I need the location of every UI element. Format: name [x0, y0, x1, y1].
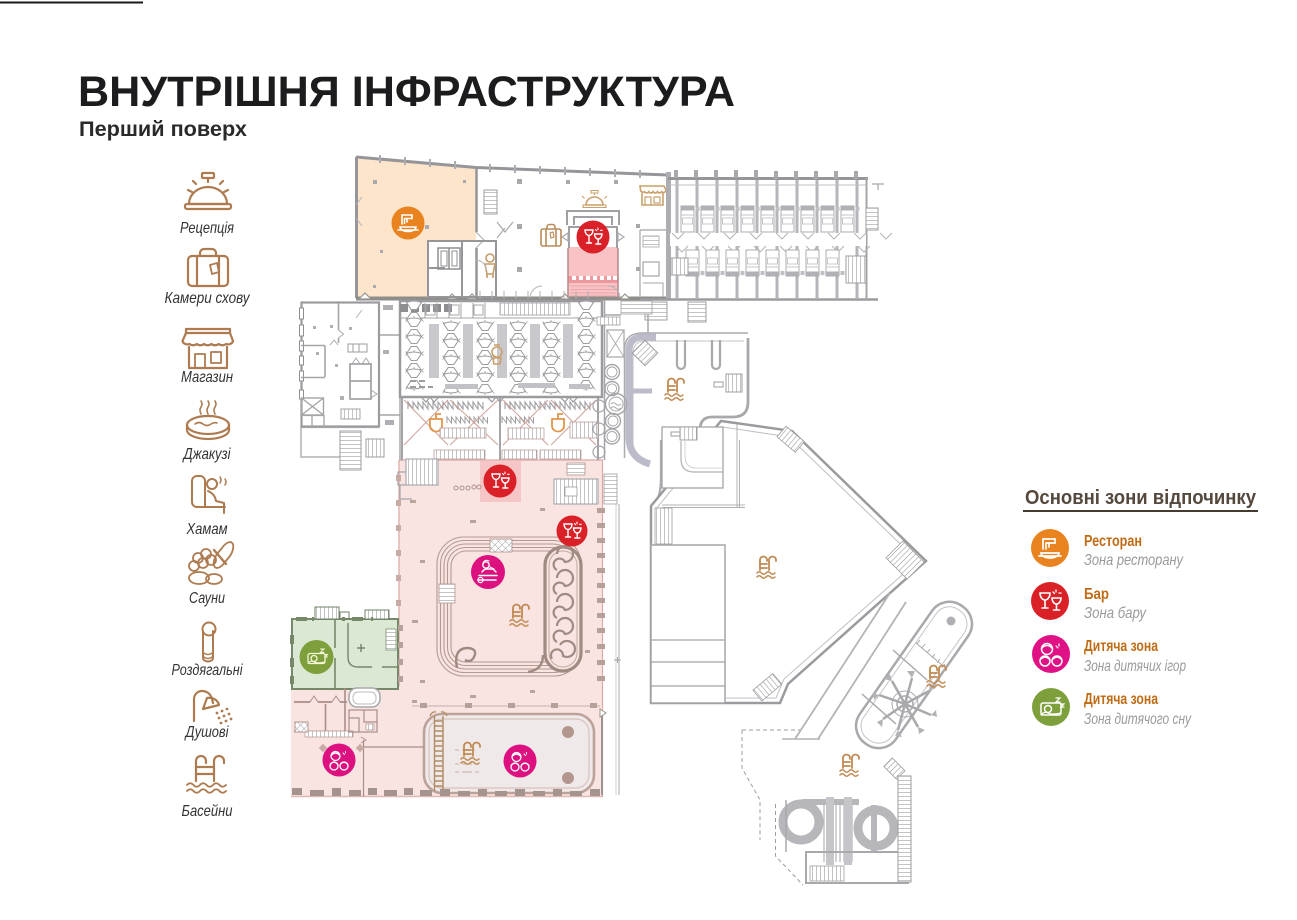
svg-text:Басейни: Басейни: [182, 803, 233, 820]
svg-text:Перший поверх: Перший поверх: [79, 117, 247, 141]
svg-text:Роздягальні: Роздягальні: [172, 662, 243, 679]
svg-text:Хамам: Хамам: [186, 521, 228, 538]
svg-text:Камери схову: Камери схову: [165, 290, 251, 307]
svg-text:Зона дитячих ігор: Зона дитячих ігор: [1084, 658, 1186, 675]
svg-text:Зона дитячого сну: Зона дитячого сну: [1084, 711, 1192, 728]
svg-text:Дитяча зона: Дитяча зона: [1084, 638, 1158, 655]
svg-text:Душові: Душові: [184, 724, 229, 741]
svg-text:Ресторан: Ресторан: [1084, 533, 1142, 550]
svg-text:ВНУТРІШНЯ ІНФРАСТРУКТУРА: ВНУТРІШНЯ ІНФРАСТРУКТУРА: [78, 68, 735, 116]
svg-text:Зона ресторану: Зона ресторану: [1084, 552, 1184, 569]
svg-text:Основні зони відпочинку: Основні зони відпочинку: [1025, 487, 1257, 509]
svg-text:Бар: Бар: [1084, 586, 1109, 603]
svg-text:Зона бару: Зона бару: [1084, 605, 1147, 622]
svg-text:Сауни: Сауни: [189, 590, 225, 607]
svg-text:Магазин: Магазин: [181, 369, 233, 386]
svg-text:Рецепція: Рецепція: [180, 220, 234, 237]
svg-text:Дитяча зона: Дитяча зона: [1084, 691, 1158, 708]
svg-text:Джакузі: Джакузі: [182, 446, 231, 463]
